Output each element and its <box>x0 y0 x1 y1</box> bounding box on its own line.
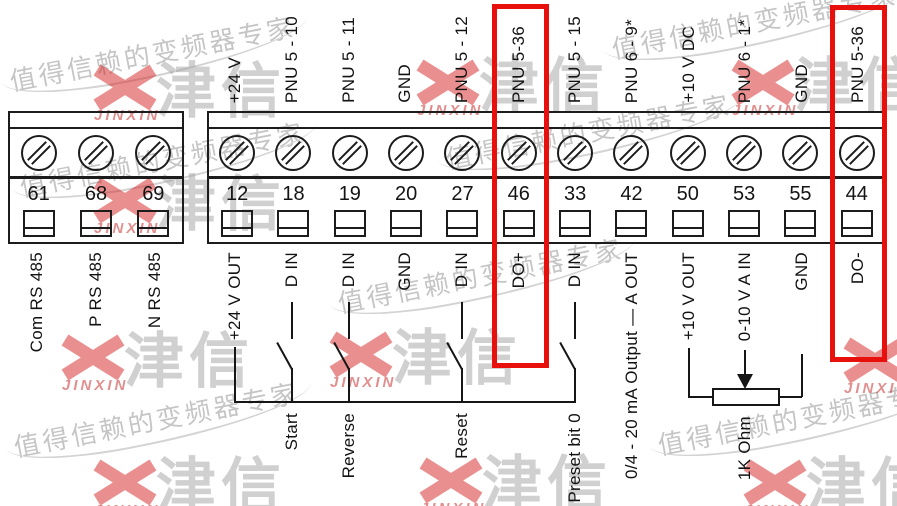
screw-icon <box>557 135 593 171</box>
screw-icon <box>613 135 649 171</box>
terminal-number: 20 <box>378 179 434 209</box>
screw-icon <box>444 135 480 171</box>
terminal-connector <box>137 210 169 237</box>
top-label-19: PNU 5 - 11 <box>340 17 358 103</box>
terminal-number: 42 <box>603 179 659 209</box>
terminal-number: 69 <box>125 179 182 209</box>
bottom-label-42: 0/4 - 20 mA Output — A OUT <box>623 252 641 479</box>
top-label-12: +24 V <box>226 57 244 103</box>
terminal-connector <box>23 210 55 237</box>
screw-icon <box>332 135 368 171</box>
terminal-block-left: 61 68 69 <box>8 111 184 244</box>
wire-10v-horiz <box>688 396 713 398</box>
switch-label-reverse: Reverse <box>340 413 358 478</box>
terminal-number: 12 <box>209 179 265 209</box>
wiring-diagram: 值得信赖的变频器专家 值得信赖的变频器专家 值得信赖的变频器专家 值得信赖的变频… <box>0 0 897 506</box>
top-label-53: PNU 6 - 1* <box>736 19 754 103</box>
switch-label-preset-bit-0: Preset bit 0 <box>566 413 584 503</box>
wire-stub <box>291 302 293 339</box>
terminal-number: 19 <box>322 179 378 209</box>
bottom-label-55: GND <box>793 252 811 291</box>
terminal-connector <box>390 210 422 237</box>
screw-icon <box>219 135 255 171</box>
bottom-label-27: D IN <box>453 252 471 287</box>
bottom-label-19: D IN <box>340 252 358 287</box>
wire-24v-feed <box>234 347 236 402</box>
potentiometer-label: 1K Ohm <box>736 416 754 480</box>
screw-icon <box>782 135 818 171</box>
wire-common-rail <box>234 401 576 403</box>
bottom-label-61: Com RS 485 <box>28 252 46 352</box>
potentiometer-body <box>712 388 780 406</box>
highlight-box-do-plus <box>492 4 549 368</box>
block-lid <box>10 113 182 129</box>
wire-lower <box>461 368 463 402</box>
top-label-55: GND <box>793 64 811 103</box>
wire-stub <box>461 302 463 339</box>
top-label-20: GND <box>396 64 414 103</box>
switch-label-reset: Reset <box>453 413 471 459</box>
screw-row <box>10 129 182 179</box>
terminal-number: 33 <box>547 179 603 209</box>
terminal-number: 27 <box>434 179 490 209</box>
screw-icon <box>670 135 706 171</box>
terminal-number: 61 <box>10 179 67 209</box>
wiper-shaft <box>744 350 746 376</box>
wire-stub <box>348 302 350 339</box>
screw-icon <box>726 135 762 171</box>
wire-stub <box>574 302 576 339</box>
wire-gnd <box>801 354 803 397</box>
top-label-33: PNU 5 - 15 <box>566 16 584 103</box>
terminal-connector <box>559 210 591 237</box>
top-label-18: PNU 5 - 10 <box>283 16 301 103</box>
terminal-number: 50 <box>660 179 716 209</box>
screw-icon <box>135 135 171 171</box>
screw-icon <box>388 135 424 171</box>
wire-lower <box>348 368 350 402</box>
terminal-connector <box>277 210 309 237</box>
highlight-box-do-minus <box>830 5 887 362</box>
bottom-label-53: 0-10 V A IN <box>736 252 754 341</box>
bottom-label-68: P RS 485 <box>87 252 105 327</box>
bottom-label-33: D IN <box>566 252 584 287</box>
bottom-label-20: GND <box>396 252 414 291</box>
bottom-label-69: N RS 485 <box>146 252 164 328</box>
watermark-logo: 津信 JINXIN <box>60 325 290 399</box>
screw-icon <box>275 135 311 171</box>
top-label-50: +10 V DC <box>680 26 698 103</box>
screw-icon <box>78 135 114 171</box>
screw-icon <box>21 135 57 171</box>
switch-label-start: Start <box>283 413 301 450</box>
terminal-connector <box>672 210 704 237</box>
bottom-label-50: +10 V OUT <box>680 252 698 340</box>
wire-lower <box>291 368 293 402</box>
terminal-number: 53 <box>716 179 772 209</box>
terminal-connector <box>334 210 366 237</box>
wiper-arrow-icon <box>737 374 753 389</box>
bottom-label-18: D IN <box>283 252 301 287</box>
terminal-number: 18 <box>265 179 321 209</box>
terminal-connector <box>446 210 478 237</box>
wire-10v <box>688 348 690 397</box>
wire-lower <box>574 368 576 402</box>
terminal-connector <box>728 210 760 237</box>
top-label-27: PNU 5 - 12 <box>453 16 471 103</box>
watermark-logo: 津信 JINXIN <box>92 450 322 506</box>
terminal-connector <box>80 210 112 237</box>
top-label-42: PNU 6 - 9* <box>623 19 641 103</box>
switch-preset-bit-0 <box>559 342 576 370</box>
bottom-label-12: +24 V OUT <box>226 252 244 340</box>
terminal-number: 55 <box>772 179 828 209</box>
wire-gnd-horiz <box>780 396 802 398</box>
terminal-number: 68 <box>67 179 124 209</box>
terminal-connector <box>784 210 816 237</box>
terminal-connector <box>615 210 647 237</box>
terminal-connector <box>221 210 253 237</box>
watermark-logo: 津信 JINXIN <box>742 450 897 506</box>
